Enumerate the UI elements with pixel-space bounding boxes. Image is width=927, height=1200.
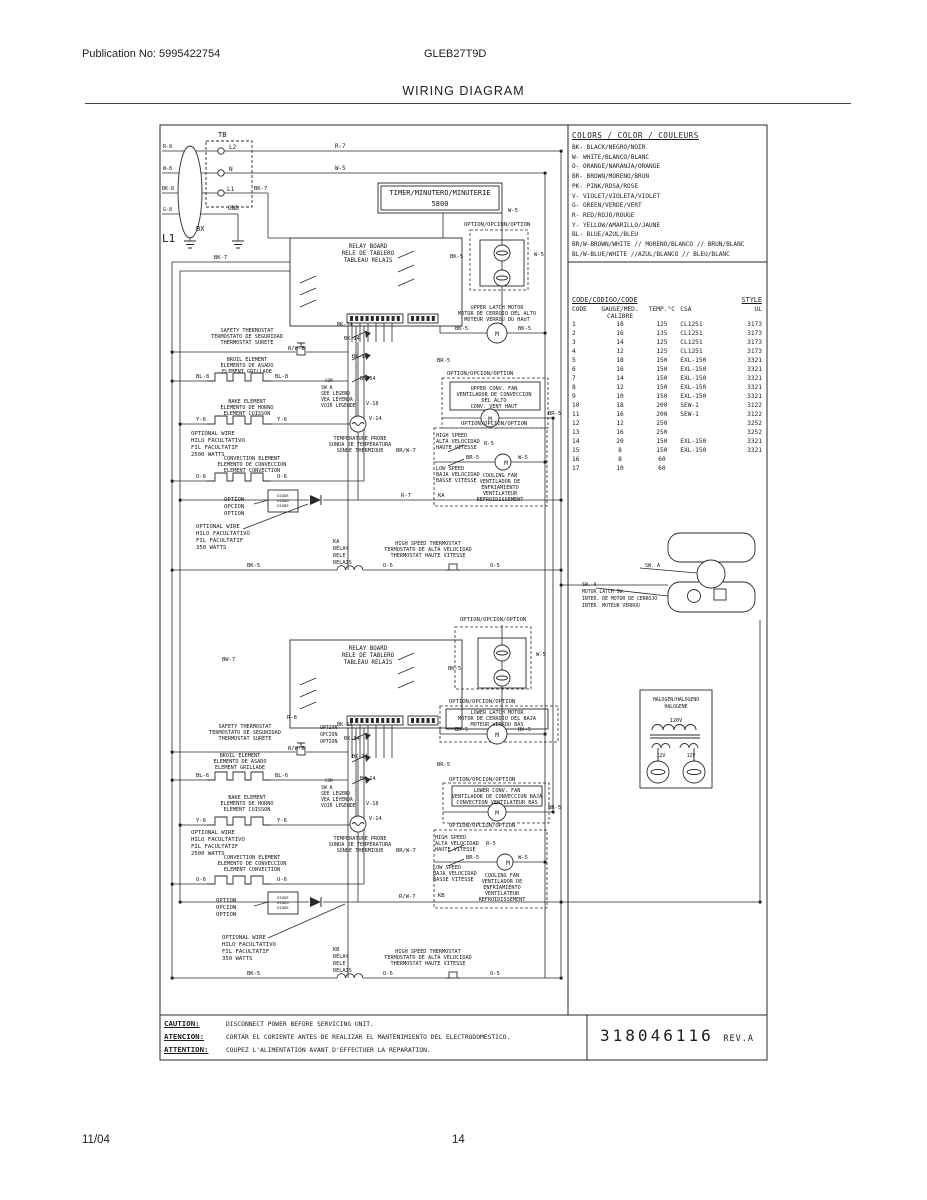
code-table-cell: 150 [644, 392, 681, 401]
diagram-label: CONV. VENT HAUT [471, 404, 518, 410]
diagram-label: OPTION [216, 912, 236, 918]
diagram-label: BW-7 [222, 657, 235, 663]
diagram-label: OPTION [224, 511, 244, 517]
code-table-cell: 6 [572, 365, 597, 374]
diagram-label: OPTION/OPCION/OPTION [447, 371, 513, 377]
diagram-label: KA [333, 539, 340, 545]
code-table-cell: 3321 [733, 383, 762, 392]
diagram-label: VOIR LEGENDE [321, 403, 356, 409]
diagram-label: INTER. MOTEUR VERROU [582, 603, 640, 609]
code-table-cell: 3 [572, 338, 597, 347]
diagram-label: O-5 [490, 563, 500, 569]
code-table-header-cell: CODE [572, 306, 597, 320]
code-table-cell: 150 [644, 356, 681, 365]
diagram-label: SEE LEGEND [321, 791, 350, 797]
code-table-cell: 3173 [733, 338, 762, 347]
diagram-label: W-8 [163, 166, 172, 172]
diagram-label: O-6 [277, 877, 287, 883]
part-number-box: 318046116 REV.A [590, 1026, 764, 1045]
diagram-label: BR-5 [437, 358, 450, 364]
diagram-label: Y-6 [277, 417, 287, 423]
diagram-label: W-5 [536, 652, 546, 658]
code-table-cell: 10 [597, 392, 644, 401]
diagram-label: OPTION/OPCION/OPTION [449, 777, 515, 783]
diagram-label: BK-7 [254, 186, 267, 192]
diagram-label: 12V [687, 753, 696, 759]
diagram-label: FIL FACULTATIF [191, 445, 239, 451]
code-table-cell [680, 455, 733, 464]
code-table: CODE/CODIGO/CODE STYLE CODEGAUGE/MED. CA… [572, 296, 762, 473]
diagram-label: V-14 [369, 416, 382, 422]
diagram-label: O-5 [490, 971, 500, 977]
color-legend-item: PK- PINK/ROSA/ROSE [572, 182, 762, 192]
diagram-label: BL-8 [275, 374, 288, 380]
diagram-label: FIL FACULTATIF [191, 844, 239, 850]
diagram-label: BK-14 [344, 736, 360, 742]
diagram-label: RELE DE TABLERO [342, 653, 395, 659]
diagram-label: BK-8 [162, 186, 174, 192]
diagram-label: BK-7 [214, 255, 227, 261]
code-table-cell: 12 [597, 419, 644, 428]
code-table-row: 812150EXL-1503321 [572, 383, 762, 392]
footer-page-number: 14 [452, 1134, 465, 1146]
color-legend-item: Y- YELLOW/AMARILLO/JAUNE [572, 221, 762, 231]
diagram-label: 120V [670, 718, 683, 724]
lower-cooling-fan-motor-icon [497, 854, 513, 870]
diagram-label: SW. A [582, 582, 597, 588]
code-table-cell: EXL-150 [680, 437, 733, 446]
code-table-cell: 10 [597, 464, 644, 473]
diagram-label: FIL FACULTATIF [196, 538, 244, 544]
diagram-label: R-8 [287, 715, 297, 721]
diagram-label: BK-14 [337, 322, 353, 328]
diagram-label: RELAY [333, 546, 349, 552]
diagram-label: THERMOSTAT SURETE [220, 340, 273, 346]
diagram-label: TB [218, 131, 226, 139]
diagram-label: W-5 [534, 252, 544, 258]
color-legend-item: BR- BROWN/MORENO/BRUN [572, 172, 762, 182]
diagram-label: HILO FACULTATIVO [196, 531, 251, 537]
diagram-label: 12V [657, 753, 666, 759]
diagram-label: ELEMENT GRILLADE [222, 369, 272, 375]
diagram-label: BK-5 [448, 666, 461, 672]
diagram-label: TIMER/MINUTERO/MINUTERIE [389, 189, 490, 197]
diagram-label: BK-5 [518, 326, 531, 332]
code-table-cell: 150 [644, 374, 681, 383]
code-table-cell: 8 [597, 446, 644, 455]
code-table-cell: CL1251 [680, 320, 733, 329]
attention-text: COUPEZ L'ALIMENTATION AVANT D'EFFECTUER … [226, 1044, 431, 1057]
code-table-cell: 3122 [733, 401, 762, 410]
code-table-cell [680, 419, 733, 428]
diagram-label: BR/W-7 [396, 448, 416, 454]
diagram-label: OPTION [320, 725, 337, 731]
color-legend-item: BK- BLACK/NEGRO/NOIR [572, 143, 762, 153]
diagram-label: ELEMENT CONVECTION [224, 867, 280, 873]
code-table-header-cell: TEMP.°C [644, 306, 681, 320]
diagram-label: OPCION [224, 504, 244, 510]
diagram-label: BR-5 [437, 762, 450, 768]
caution-block: CAUTION: DISCONNECT POWER BEFORE SERVICI… [164, 1018, 579, 1057]
code-table-cell: 3321 [733, 374, 762, 383]
code-table-body: 118125CL12513173216135CL12513173314125CL… [572, 320, 762, 473]
diagram-label: OPTION/OPCION/OPTION [464, 222, 530, 228]
code-table-cell: 150 [644, 365, 681, 374]
code-table-row: 1116200SEW-13122 [572, 410, 762, 419]
code-table-cell: 135 [644, 329, 681, 338]
diagram-label: RELE [333, 961, 346, 967]
diagram-label: SEE LEGEND [321, 391, 350, 397]
atencion-text: CORTAR EL CORIENTE ANTES DE REALIZAR EL … [226, 1031, 510, 1044]
color-legend-item: V- VIOLET/VIOLETA/VIOLET [572, 192, 762, 202]
code-table-cell [733, 455, 762, 464]
caution-row: ATTENTION: COUPEZ L'ALIMENTATION AVANT D… [164, 1044, 579, 1057]
color-legend-item: O- ORANGE/NARANJA/ORANGE [572, 162, 762, 172]
code-table-cell: EXL-150 [680, 383, 733, 392]
diagram-label: BR-5 [548, 805, 561, 811]
terminal-l1 [218, 190, 224, 196]
diagram-label: BASSE VITESSE [436, 478, 477, 484]
code-table-cell [733, 464, 762, 473]
timer-box [378, 183, 502, 213]
code-table-cell: 250 [644, 419, 681, 428]
diagram-label: MOTOR LATCH SW. [582, 589, 625, 595]
code-table-cell: 125 [644, 320, 681, 329]
diagram-label: O-5 [383, 563, 393, 569]
motor-latch-sketch [668, 533, 755, 612]
code-table-row: 714150EXL-1503321 [572, 374, 762, 383]
code-table-cell: 12 [572, 419, 597, 428]
code-table-cell: EXL-150 [680, 446, 733, 455]
terminal-l2 [218, 148, 224, 154]
caution-label: CAUTION: [164, 1018, 226, 1031]
diagram-label: MOTEUR VERROU DU HAUT [464, 317, 530, 323]
diagram-label: BL-6 [275, 773, 288, 779]
diagram-label: OPTIONAL WIRE [222, 935, 266, 941]
diagram-label: M [506, 860, 510, 867]
code-table-cell: 3252 [733, 419, 762, 428]
diagram-label: RELE DE TABLERO [342, 251, 395, 257]
part-number: 318046116 [600, 1026, 714, 1045]
diagram-label: DIODE [277, 905, 289, 910]
diagram-label: O-6 [196, 877, 206, 883]
terminal-n [218, 170, 224, 176]
diagram-label: OPCION [320, 732, 337, 738]
diagram-label: TABLEAU RELAIS [344, 660, 393, 666]
diagram-label: M [495, 732, 499, 739]
code-table-row: 118125CL12513173 [572, 320, 762, 329]
diagram-label: SW. A [645, 563, 660, 569]
diagram-label: BK-5 [455, 727, 468, 733]
code-table-cell: EXL-150 [680, 365, 733, 374]
diagram-label: 350 WATTS [196, 545, 226, 551]
diagram-label: VEA LEYENDA [321, 397, 353, 403]
code-table-cell: 150 [644, 446, 681, 455]
diagram-label: COM [325, 378, 333, 383]
diagram-label: W-5 [508, 208, 518, 214]
diagram-label: BR-5 [548, 411, 561, 417]
diagram-label: THERMOSTAT HAUTE VITESSE [391, 553, 466, 559]
code-table-cell: 3252 [733, 428, 762, 437]
diagram-label: COM [325, 778, 333, 783]
diagram-label: Y-6 [196, 818, 206, 824]
diagram-label: BK-5 [450, 254, 463, 260]
colors-legend-title: COLORS / COLOR / COULEURS [572, 131, 762, 140]
diagram-label: ELEMENT GRILLADE [215, 765, 265, 771]
diagram-label: SW A [321, 785, 333, 791]
diagram-label: BASSE VITESSE [433, 877, 474, 883]
ground-icon [184, 241, 244, 248]
code-table-cell: 3321 [733, 446, 762, 455]
code-table-cell: 3321 [733, 356, 762, 365]
code-table-cell: CL1251 [680, 329, 733, 338]
diagram-label: OPTION/OPCION/OPTION [460, 617, 526, 623]
diagram-label: R/W-6 [288, 746, 305, 752]
diagram-label: HAUTE VITESSE [435, 847, 476, 853]
diagram-label: OPTION [320, 739, 337, 745]
upper-cooling-fan-motor-icon [495, 454, 511, 470]
diagram-label: Y-6 [277, 818, 287, 824]
code-table-row: 216135CL12513173 [572, 329, 762, 338]
diagram-label: R-8 [163, 144, 172, 150]
diagram-label: 2500 WATTS [191, 851, 225, 857]
diagram-label: BK-14 [344, 336, 360, 342]
code-table-cell: CL1251 [680, 338, 733, 347]
diagram-label: OPTION/OPCION/OPTION [461, 421, 527, 427]
diagram-label: RELE [333, 553, 346, 559]
diagram-label: BK-14 [360, 776, 376, 782]
code-table-cell: 9 [572, 392, 597, 401]
diagram-label: RELAIS [333, 560, 352, 566]
code-table-cell: 18 [597, 401, 644, 410]
diagram-label: R-5 [484, 441, 494, 447]
code-table-cell: 18 [597, 356, 644, 365]
diagram-label: W-5 [335, 166, 346, 172]
diagram-label: L2 [229, 144, 237, 151]
diagram-label: M [504, 460, 508, 467]
code-table-cell: 1 [572, 320, 597, 329]
diagram-label: FIL FACULTATIF [222, 949, 270, 955]
code-table-row: 16860 [572, 455, 762, 464]
diagram-label: REFROIDISSEMENT [479, 897, 526, 903]
code-table-style-title: STYLE [742, 296, 762, 304]
diagram-label: BK-14 [352, 354, 368, 360]
code-table-cell: 3173 [733, 347, 762, 356]
code-table-cell: 11 [572, 410, 597, 419]
diagram-label: O-5 [383, 971, 393, 977]
code-table-cell: SEW-1 [680, 401, 733, 410]
code-table-cell: 2 [572, 329, 597, 338]
code-table-cell: 13 [572, 428, 597, 437]
code-table-cell: 125 [644, 338, 681, 347]
diagram-label: DIODE [277, 503, 289, 508]
code-table-cell: 8 [572, 383, 597, 392]
caution-text: DISCONNECT POWER BEFORE SERVICING UNIT. [226, 1018, 374, 1031]
code-table-header-cell: UL [733, 306, 762, 320]
diagram-label: N [229, 166, 233, 173]
diagram-label: R-5 [486, 841, 496, 847]
diagram-label: KB [438, 893, 445, 899]
code-table-cell: 150 [644, 437, 681, 446]
code-table-cell: 3122 [733, 410, 762, 419]
diagram-label: L1 [162, 232, 175, 245]
diagram-label: BL-6 [196, 773, 209, 779]
code-table-cell [680, 428, 733, 437]
diagram-label: OPTION/OPCION/OPTION [449, 823, 515, 829]
diagram-label: HILO FACULTATIVO [222, 942, 277, 948]
diagram-label: HILO FACULTATIVO [191, 438, 246, 444]
diagram-label: 5800 [432, 200, 449, 208]
code-table-row: 158150EXL-1503321 [572, 446, 762, 455]
diagram-label: OPTIONAL WIRE [191, 431, 235, 437]
diagram-label: HILO FACULTATIVO [191, 837, 246, 843]
diagram-label: R-7 [335, 144, 346, 150]
code-table-header: CODEGAUGE/MED. CALIBRETEMP.°CCSAUL [572, 306, 762, 320]
code-table-cell: 60 [644, 455, 681, 464]
code-table-cell: 12 [597, 383, 644, 392]
diagram-label: O-6 [277, 474, 287, 480]
colors-list: BK- BLACK/NEGRO/NOIRW- WHITE/BLANCO/BLAN… [572, 143, 762, 259]
color-legend-item: BL- BLUE/AZUL/BLEU [572, 230, 762, 240]
diagram-label: R/W-8 [288, 346, 305, 352]
diagram-label: CONVECTION VENTILATEUR BAS [456, 800, 537, 806]
code-table-row: 910150EXL-1503321 [572, 392, 762, 401]
code-table-cell: EXL-150 [680, 374, 733, 383]
code-table-cell: 14 [597, 374, 644, 383]
diagram-label: W-5 [518, 855, 528, 861]
code-table-cell [680, 464, 733, 473]
code-table-cell: 16 [597, 428, 644, 437]
code-table-cell: 125 [644, 347, 681, 356]
code-table-cell: 16 [597, 410, 644, 419]
diagram-label: RELAY BOARD [349, 244, 388, 250]
diagram-label: BK-5 [518, 727, 531, 733]
diagram-label: VOIR LEGENDE [321, 803, 356, 809]
diagram-label: BK-5 [455, 326, 468, 332]
code-table-cell: 3321 [733, 437, 762, 446]
code-table-row: 518150EXL-1503321 [572, 356, 762, 365]
diagram-label: MOTEUR VERROU BAS [470, 722, 523, 728]
diagram-label: Y-6 [196, 417, 206, 423]
diagram-label: BR/W-7 [396, 848, 416, 854]
footer-date: 11/04 [82, 1134, 110, 1146]
code-table-cell: 7 [572, 374, 597, 383]
code-table-row: 1018200SEW-13122 [572, 401, 762, 410]
code-table-cell: 5 [572, 356, 597, 365]
diagram-label: BK-14 [360, 376, 376, 382]
diagram-label: L1 [227, 186, 235, 193]
code-table-cell: 200 [644, 410, 681, 419]
code-table-cell: 14 [572, 437, 597, 446]
diagram-label: RELAY [333, 954, 349, 960]
diagram-label: V-18 [366, 401, 379, 407]
diagram-label: SONDE THERMIQUE [337, 448, 384, 454]
code-table-cell: 8 [597, 455, 644, 464]
diagram-label: INTER. DE MOTOR DE CERROJO [582, 596, 657, 602]
code-table-row: 616150EXL-1503321 [572, 365, 762, 374]
diagram-label: SW A [321, 385, 333, 391]
diagram-label: OPCION [216, 905, 236, 911]
code-table-cell: 3321 [733, 365, 762, 374]
colors-legend: COLORS / COLOR / COULEURS BK- BLACK/NEGR… [572, 131, 762, 259]
code-table-cell: 200 [644, 401, 681, 410]
diagram-label: TABLEAU RELAIS [344, 258, 393, 264]
code-table-row: 13162503252 [572, 428, 762, 437]
diagram-label: V-14 [369, 816, 382, 822]
diagram-label: ELEMENT CONVECTION [224, 468, 280, 474]
diagram-label: R-7 [401, 493, 411, 499]
color-legend-item: W- WHITE/BLANCO/BLANC [572, 153, 762, 163]
code-table-cell: 250 [644, 428, 681, 437]
diagram-label: ELEMENT CUISSON [224, 807, 271, 813]
diagram-label: OPTION/OPCION/OPTION [449, 699, 515, 705]
code-table-cell: 20 [597, 437, 644, 446]
code-table-cell: 17 [572, 464, 597, 473]
attention-label: ATTENTION: [164, 1044, 226, 1057]
diagram-label: HALOGENE [664, 704, 687, 710]
diagram-label: SONDE THERMIQUE [337, 848, 384, 854]
diagram-label: BL-8 [196, 374, 209, 380]
relay-coil-icons [337, 566, 363, 978]
code-table-header-cell: GAUGE/MED. CALIBRE [597, 306, 644, 320]
diagram-label: VEA LEYENDA [321, 797, 353, 803]
diagram-label: THERMOSTAT SURETE [218, 736, 271, 742]
color-legend-item: G- GREEN/VERDE/VERT [572, 201, 762, 211]
code-table-cell: 12 [597, 347, 644, 356]
diagram-label: OPTION [216, 898, 236, 904]
code-table-row: 12122503252 [572, 419, 762, 428]
diagram-label: BK-5 [247, 971, 260, 977]
diagram-label: KB [333, 947, 339, 953]
diagram-label: G-8 [163, 207, 172, 213]
diagram-label: HALOGEN/HALOGENO [653, 697, 699, 703]
code-table-cell: 18 [597, 320, 644, 329]
diagram-label: M [495, 331, 499, 338]
diagram-label: RELAY BOARD [349, 646, 388, 652]
diagram-label: W-5 [518, 455, 528, 461]
code-table-header-cell: CSA [680, 306, 733, 320]
diagram-label: O-6 [196, 474, 206, 480]
code-table-cell: 16 [597, 329, 644, 338]
diagram-label: OPTIONAL WIRE [196, 524, 240, 530]
code-table-cell: SEW-1 [680, 410, 733, 419]
diode-icons [310, 495, 321, 907]
diagram-label: REFROIDISSEMENT [477, 497, 524, 503]
color-legend-item: BL/W-BLUE/WHITE //AZUL/BLANCO // BLEU/BL… [572, 250, 762, 260]
code-table-cell: EXL-150 [680, 356, 733, 365]
code-table-cell: 15 [572, 446, 597, 455]
code-table-cell: 60 [644, 464, 681, 473]
diagram-label: BK-14 [337, 722, 353, 728]
diagram-label: OPTION [224, 497, 244, 503]
code-table-cell: 10 [572, 401, 597, 410]
diagram-label: BR-5 [466, 455, 479, 461]
code-table-cell: 150 [644, 383, 681, 392]
diagram-label: KA [438, 493, 445, 499]
code-table-cell: 3173 [733, 329, 762, 338]
color-legend-item: BR/W-BROWN/WHITE // MORENO/BLANCO // BRU… [572, 240, 762, 250]
atencion-label: ATENCION: [164, 1031, 226, 1044]
diagram-label: OPTIONAL WIRE [191, 830, 235, 836]
diagram-label: HAUTE VITESSE [436, 445, 477, 451]
code-table-cell: CL1251 [680, 347, 733, 356]
code-table-cell: EXL-150 [680, 392, 733, 401]
diagram-label: 350 WATTS [222, 956, 252, 962]
diagram-label: V-18 [366, 801, 379, 807]
diagram-label: BK-5 [247, 563, 260, 569]
code-table-cell: 3321 [733, 392, 762, 401]
diagram-label: 2500 WATTS [191, 452, 225, 458]
